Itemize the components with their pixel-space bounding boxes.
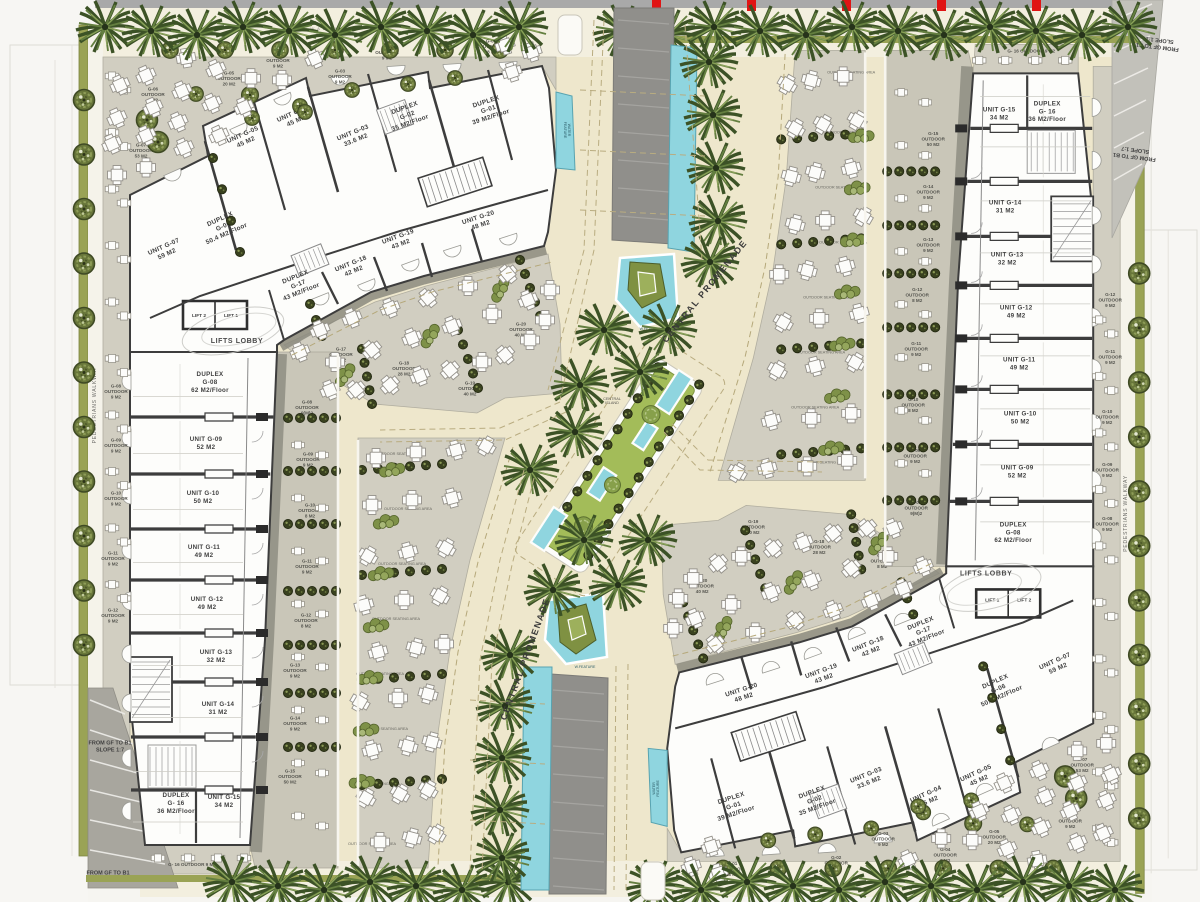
svg-text:OUTDOOR SEATING AREA: OUTDOOR SEATING AREA: [797, 350, 845, 354]
svg-text:PEDESTRIANS WALKWAY: PEDESTRIANS WALKWAY: [1123, 475, 1129, 552]
svg-text:LIFTS LOBBY: LIFTS LOBBY: [211, 338, 264, 345]
svg-text:WATERFEATURE: WATERFEATURE: [563, 122, 571, 139]
svg-text:W.FEATURE: W.FEATURE: [575, 665, 596, 669]
svg-text:LIFT 2: LIFT 2: [1017, 597, 1031, 603]
svg-text:WATERFEATURE: WATERFEATURE: [652, 780, 660, 797]
svg-text:OUTDOOR SEATING AREA: OUTDOOR SEATING AREA: [378, 562, 426, 566]
svg-text:LIFT 2: LIFT 2: [192, 313, 206, 319]
svg-text:G- 16 OUTDOOR 9 M2: G- 16 OUTDOOR 9 M2: [168, 862, 216, 867]
svg-text:LIFTS LOBBY: LIFTS LOBBY: [960, 570, 1013, 577]
svg-text:CENTRALISLAND: CENTRALISLAND: [603, 397, 621, 405]
